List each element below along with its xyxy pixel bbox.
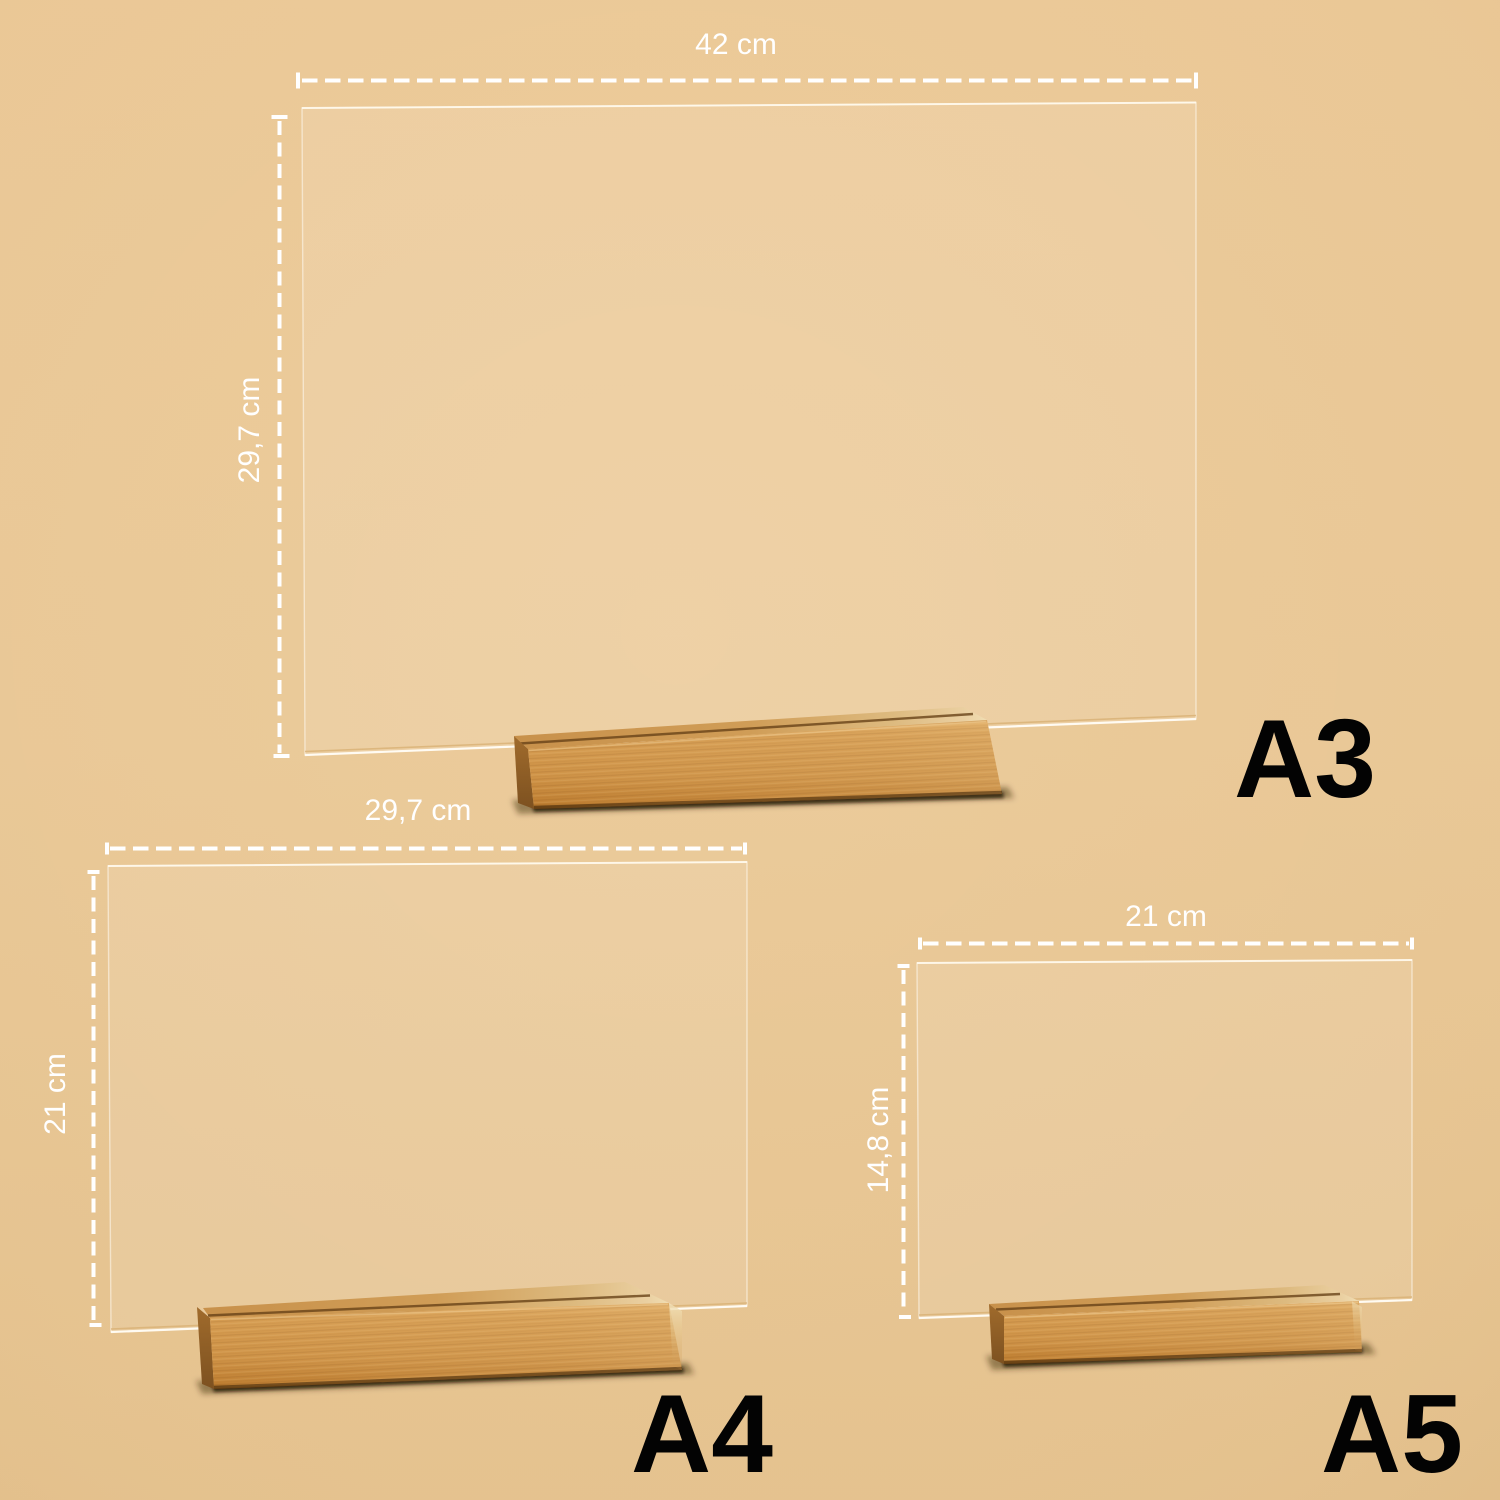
svg-text:21 cm: 21 cm bbox=[1125, 900, 1207, 933]
svg-text:A4: A4 bbox=[631, 1372, 773, 1496]
svg-text:42 cm: 42 cm bbox=[695, 28, 777, 61]
svg-text:29,7 cm: 29,7 cm bbox=[233, 377, 266, 484]
svg-text:14,8 cm: 14,8 cm bbox=[862, 1087, 895, 1194]
svg-text:A3: A3 bbox=[1234, 697, 1376, 821]
svg-text:A5: A5 bbox=[1321, 1372, 1463, 1496]
svg-text:29,7 cm: 29,7 cm bbox=[365, 794, 472, 827]
svg-text:21 cm: 21 cm bbox=[39, 1053, 72, 1135]
